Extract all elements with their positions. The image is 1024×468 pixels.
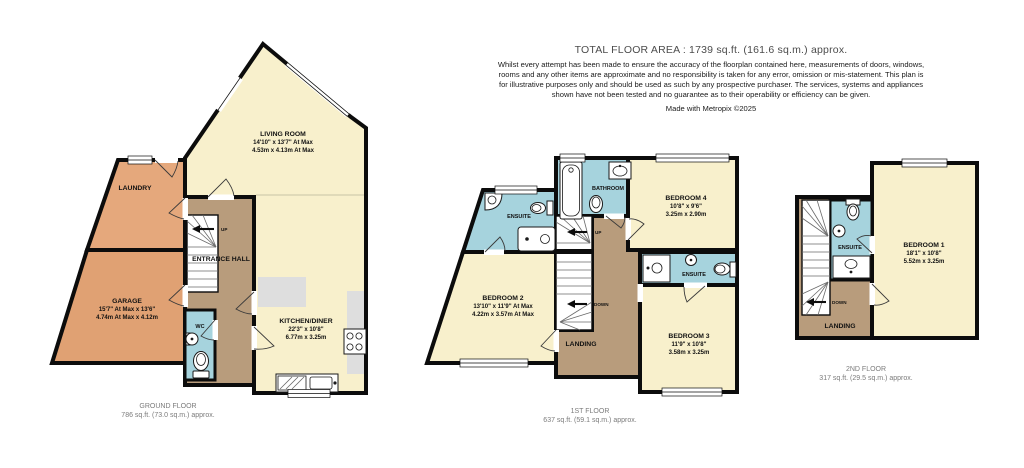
- landing-label: LANDING: [825, 323, 856, 330]
- first-floor-caption: 1ST FLOOR 637 sq.ft. (59.1 sq.m.) approx…: [480, 408, 700, 425]
- disclaimer-text: Whilst every attempt has been made to en…: [495, 60, 927, 99]
- wc-label: WC: [195, 324, 204, 330]
- bedroom3-window: [662, 388, 722, 396]
- living-room-label: LIVING ROOM: [260, 131, 306, 138]
- living-room-dims-imperial: 14'10" x 13'7" At Max: [253, 140, 313, 146]
- garage-dims-imperial: 15'7" At Max x 13'6": [99, 307, 156, 313]
- entrance-hall-label: ENTRANCE HALL: [192, 256, 250, 263]
- garage-label: GARAGE: [112, 298, 142, 305]
- kitchen-label: KITCHEN/DINER: [279, 318, 332, 325]
- second-floor-caption-area: 317 sq.ft. (29.5 sq.m.) approx.: [756, 375, 976, 384]
- basin-icon: [609, 162, 631, 179]
- ground-floor-caption-area: 786 sq.ft. (73.0 sq.m.) approx.: [58, 412, 278, 421]
- bedroom1-dims-imperial: 18'1" x 10'8": [906, 251, 941, 257]
- floorplan-page: TOTAL FLOOR AREA : 1739 sq.ft. (161.6 sq…: [0, 0, 1024, 468]
- toilet-icon: [590, 196, 603, 213]
- bedroom4-dims-metric: 3.25m x 2.90m: [666, 212, 707, 218]
- kitchen-counter: [258, 277, 306, 307]
- down-label: DOWN: [594, 302, 609, 307]
- second-stairs-icon: [802, 200, 830, 315]
- ensuite-label: ENSUITE: [838, 245, 862, 251]
- bathtub-icon: [560, 162, 582, 219]
- ensuite-left-window: [495, 186, 537, 194]
- toilet-icon: [846, 199, 860, 220]
- bedroom3-label: BEDROOM 3: [668, 333, 709, 340]
- ensuite-left-label: ENSUITE: [507, 214, 531, 220]
- bedroom4-label: BEDROOM 4: [665, 195, 706, 202]
- metropix-credit: Made with Metropix ©2025: [495, 104, 927, 113]
- toilet-icon: [531, 201, 554, 215]
- second-floor-plan: BEDROOM 1 18'1" x 10'8" 5.52m x 3.25m EN…: [793, 152, 985, 344]
- second-floor-caption: 2ND FLOOR 317 sq.ft. (29.5 sq.m.) approx…: [756, 366, 976, 383]
- bedroom2-dims-imperial: 13'10" x 11'9" At Max: [473, 304, 533, 310]
- down-label: DOWN: [832, 300, 847, 305]
- kitchen-dims-imperial: 22'3" x 10'8": [288, 327, 323, 333]
- bathroom-window: [560, 154, 585, 162]
- ground-floor-plan: LIVING ROOM 14'10" x 13'7" At Max 4.53m …: [35, 38, 375, 403]
- first-floor-caption-label: 1ST FLOOR: [480, 408, 700, 417]
- bedroom2-label: BEDROOM 2: [482, 295, 523, 302]
- garage-dims-metric: 4.74m At Max x 4.12m: [96, 315, 158, 321]
- second-windows: [902, 159, 947, 167]
- ground-stairs-icon: [187, 215, 218, 292]
- bedroom4-window: [656, 154, 729, 162]
- bedroom1-dims-metric: 5.52m x 3.25m: [904, 259, 945, 265]
- shower-icon: [643, 255, 670, 282]
- laundry-room: [87, 160, 185, 250]
- shower-icon: [518, 227, 555, 251]
- bedroom4-dims-imperial: 10'8" x 9'6": [670, 204, 702, 210]
- kitchen-window: [288, 390, 330, 398]
- hob-icon: [344, 329, 366, 354]
- basin-icon: [186, 333, 198, 345]
- first-stairs-icon: [556, 216, 592, 330]
- ensuite-right-label: ENSUITE: [682, 272, 706, 278]
- bedroom3-dims-imperial: 11'9" x 10'8": [672, 342, 707, 348]
- bedroom2-window: [460, 359, 528, 367]
- first-floor-caption-area: 637 sq.ft. (59.1 sq.m.) approx.: [480, 417, 700, 426]
- basin-icon: [833, 225, 845, 237]
- basin-icon: [686, 255, 697, 266]
- laundry-label: LAUNDRY: [119, 185, 152, 192]
- second-floor-caption-label: 2ND FLOOR: [756, 366, 976, 375]
- up-label: UP: [221, 227, 227, 232]
- ground-floor-caption-label: GROUND FLOOR: [58, 403, 278, 412]
- bathroom-label: BATHROOM: [592, 186, 624, 192]
- toilet-icon: [193, 352, 209, 379]
- living-room-dims-metric: 4.53m x 4.13m At Max: [252, 148, 314, 154]
- up-label: UP: [595, 230, 601, 235]
- kitchen-dims-metric: 6.77m x 3.25m: [286, 335, 327, 341]
- bedroom2-dims-metric: 4.22m x 3.57m At Max: [472, 312, 534, 318]
- vanity-unit-icon: [833, 256, 870, 278]
- bedroom3-dims-metric: 3.58m x 3.25m: [669, 350, 710, 356]
- total-floor-area-title: TOTAL FLOOR AREA : 1739 sq.ft. (161.6 sq…: [495, 44, 927, 56]
- ground-floor-caption: GROUND FLOOR 786 sq.ft. (73.0 sq.m.) app…: [58, 403, 278, 420]
- bedroom1-label: BEDROOM 1: [903, 242, 944, 249]
- first-floor-plan: BEDROOM 2 13'10" x 11'9" At Max 4.22m x …: [425, 148, 745, 403]
- laundry-window: [128, 156, 152, 164]
- bedroom1-window: [902, 159, 947, 167]
- landing-label: LANDING: [566, 341, 597, 348]
